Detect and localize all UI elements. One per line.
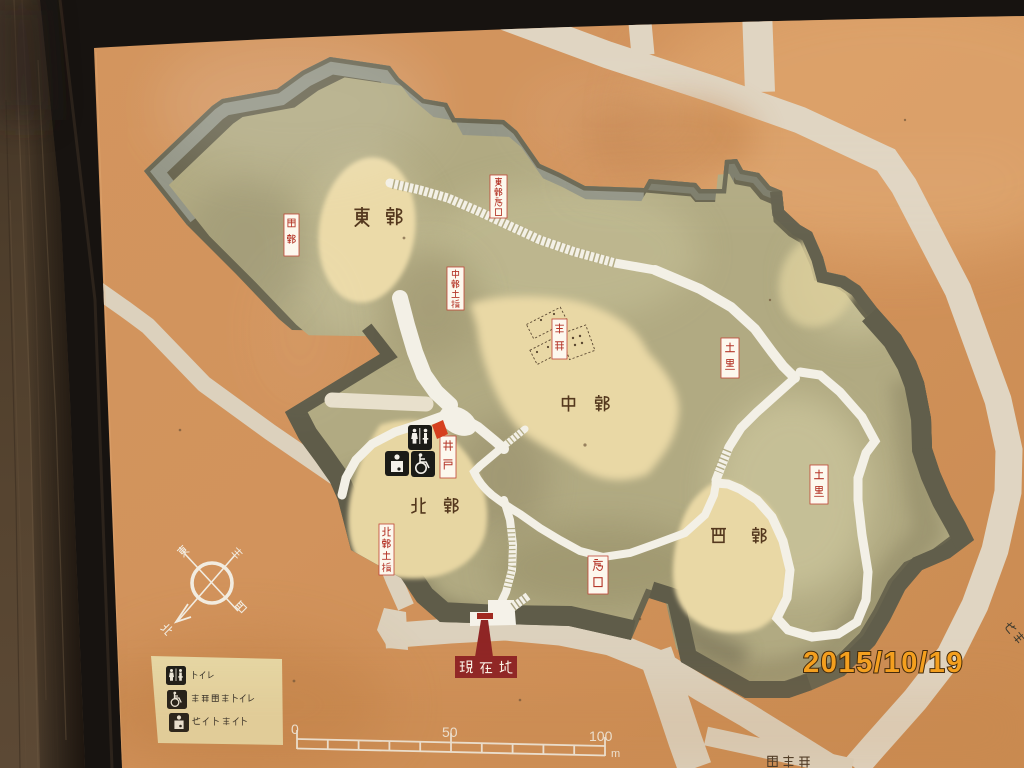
- svg-text:2015/10/19: 2015/10/19: [803, 647, 964, 679]
